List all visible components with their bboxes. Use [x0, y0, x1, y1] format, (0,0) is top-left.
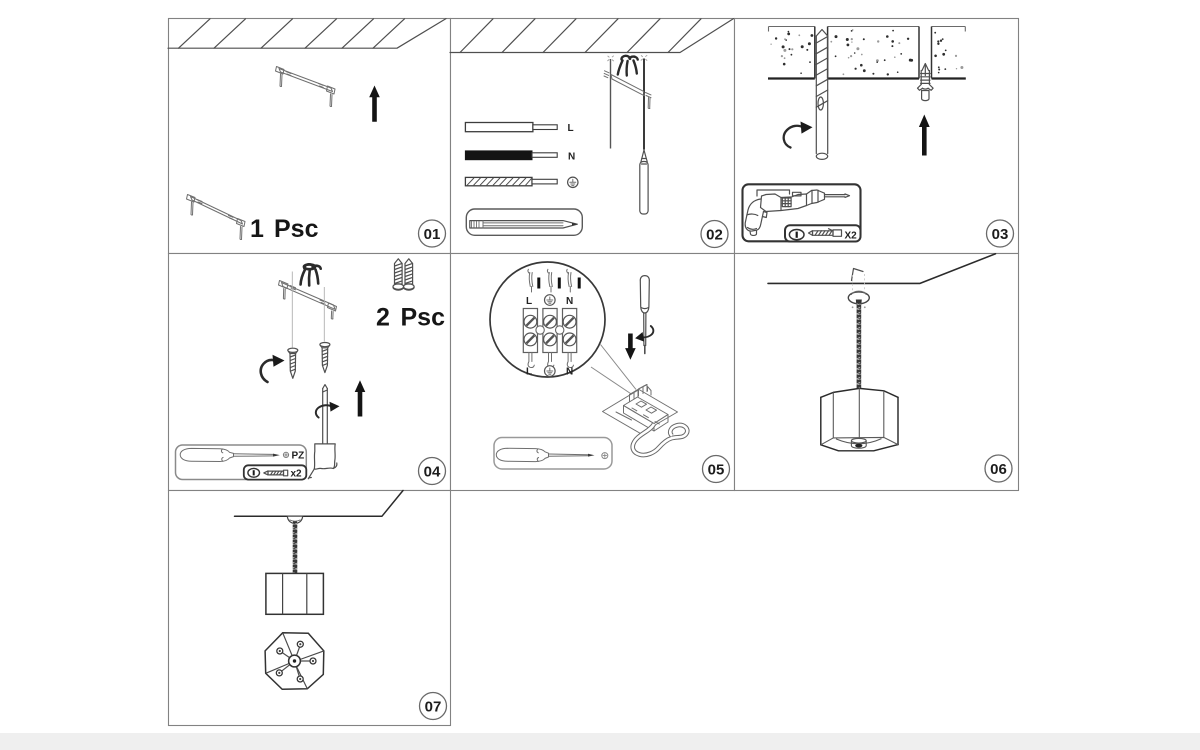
svg-text:1: 1	[250, 215, 264, 243]
svg-text:06: 06	[990, 461, 1007, 478]
svg-text:01: 01	[424, 226, 441, 243]
svg-text:02: 02	[706, 227, 723, 244]
svg-text:PZ: PZ	[292, 451, 305, 462]
svg-text:L: L	[526, 296, 532, 307]
svg-text:x2: x2	[291, 468, 303, 479]
svg-text:N: N	[566, 296, 573, 307]
svg-text:X2: X2	[845, 231, 858, 242]
svg-text:Psc: Psc	[274, 215, 319, 243]
svg-text:N: N	[568, 152, 575, 163]
svg-text:L: L	[526, 367, 532, 378]
svg-text:07: 07	[425, 699, 442, 716]
svg-text:N: N	[566, 367, 573, 378]
svg-text:04: 04	[424, 464, 441, 481]
svg-text:05: 05	[708, 462, 725, 479]
svg-text:L: L	[568, 123, 574, 134]
svg-text:03: 03	[992, 226, 1009, 243]
svg-text:Psc: Psc	[401, 304, 446, 332]
svg-text:2: 2	[376, 304, 390, 332]
